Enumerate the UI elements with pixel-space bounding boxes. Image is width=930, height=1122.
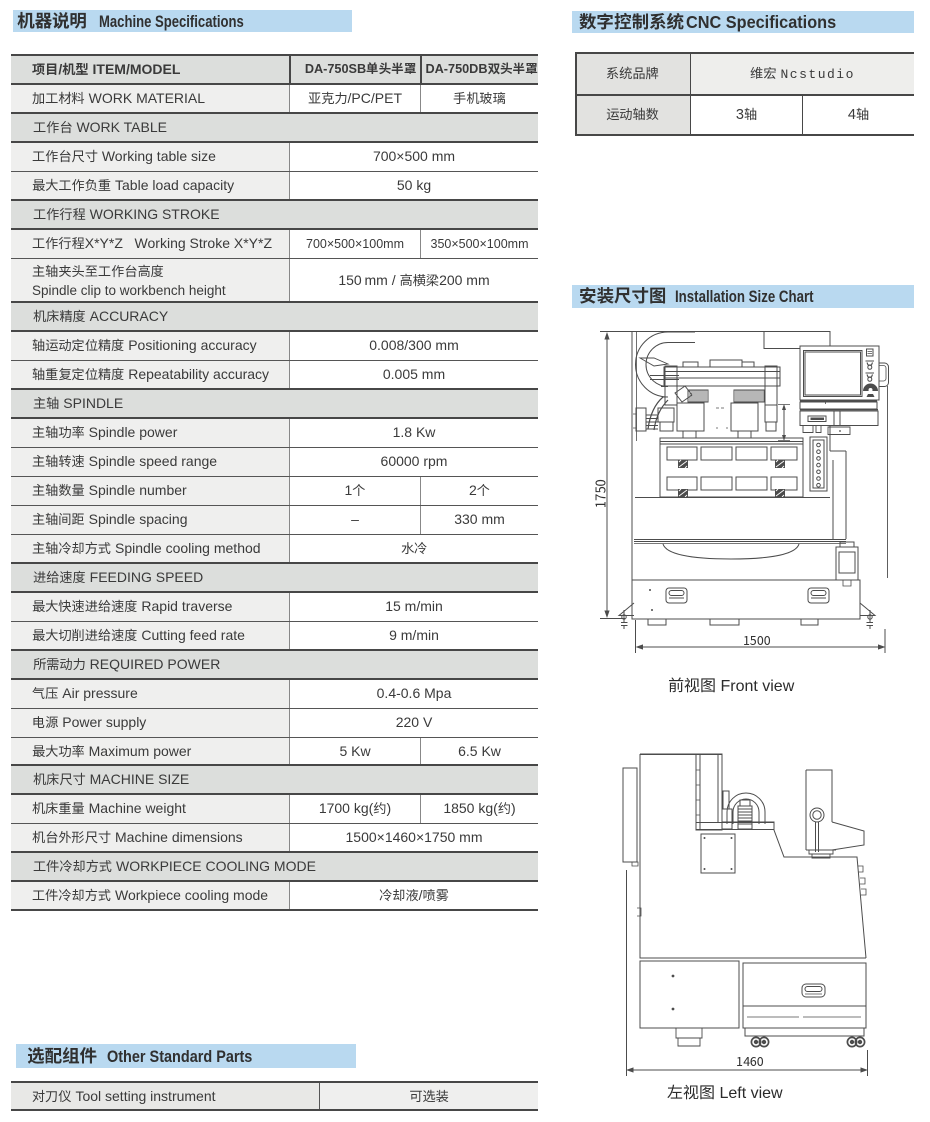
- svg-text:1460: 1460: [736, 1051, 764, 1070]
- svg-text:1500: 1500: [743, 630, 771, 649]
- svg-text:1750: 1750: [591, 479, 610, 508]
